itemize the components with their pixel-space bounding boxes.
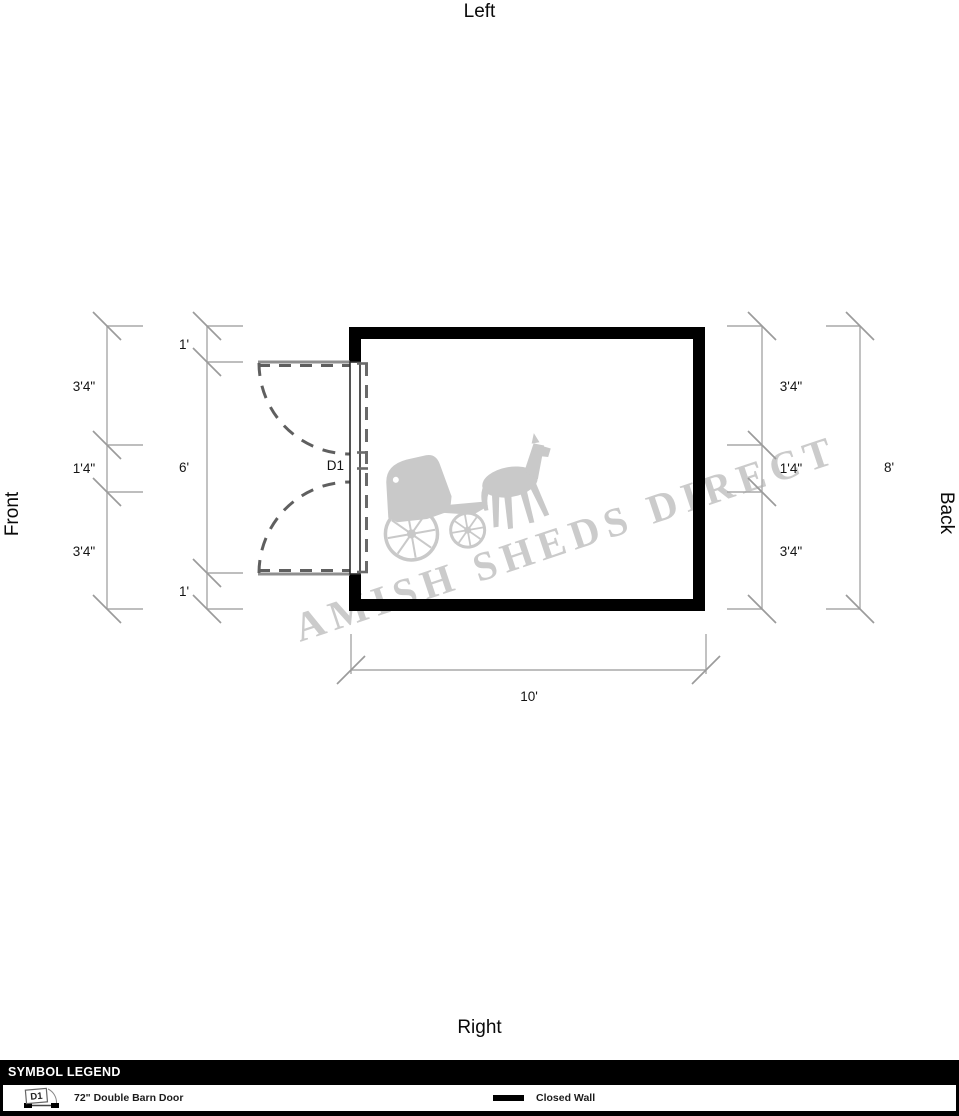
door-swing-arc-top xyxy=(259,363,350,454)
door-symbol-label: D1 xyxy=(30,1090,44,1102)
wall-top xyxy=(349,327,705,339)
dim-label: 1'4" xyxy=(73,461,96,476)
watermark-text: AMISH SHEDS DIRECT xyxy=(288,426,844,651)
dim-label: 3'4" xyxy=(73,544,96,559)
wall-left-lower xyxy=(349,574,361,611)
dim-label-height: 8' xyxy=(884,460,894,475)
legend-body: D1 72" Double Barn Door Closed Wall xyxy=(3,1085,956,1111)
floor-plan-page: Left Front Back Right xyxy=(0,0,959,1116)
wall-bottom xyxy=(349,599,705,611)
legend-wall-label: Closed Wall xyxy=(536,1092,595,1104)
dim-label: 3'4" xyxy=(780,379,803,394)
legend-item-door: D1 72" Double Barn Door xyxy=(23,1085,183,1111)
dimension-bottom: 10' xyxy=(337,634,720,704)
dim-label: 1' xyxy=(179,337,189,352)
closed-wall-icon xyxy=(493,1095,524,1101)
dim-label: 1' xyxy=(179,584,189,599)
dim-label-width: 10' xyxy=(520,689,538,704)
legend-header: SYMBOL LEGEND xyxy=(0,1060,959,1085)
dim-label: 3'4" xyxy=(780,544,803,559)
legend-door-label: 72" Double Barn Door xyxy=(74,1092,183,1104)
dim-label: 6' xyxy=(179,460,189,475)
door-swing-arc-bottom xyxy=(259,482,350,573)
door-d1: D1 xyxy=(258,362,368,574)
dimension-left-inner: 1' 6' 1' xyxy=(179,312,243,623)
dim-label: 3'4" xyxy=(73,379,96,394)
wall-right xyxy=(693,327,705,611)
dimension-left-outer: 3'4" 1'4" 3'4" xyxy=(73,312,143,623)
floor-plan-drawing: AMISH SHEDS DIRECT 3'4" 1'4" 3'4" xyxy=(0,0,959,1060)
wall-left-upper xyxy=(349,327,361,362)
door-symbol-icon: D1 xyxy=(23,1087,61,1110)
dim-label: 1'4" xyxy=(780,461,803,476)
legend-item-closed-wall: Closed Wall xyxy=(493,1085,595,1111)
watermark: AMISH SHEDS DIRECT xyxy=(288,426,844,651)
symbol-legend: SYMBOL LEGEND D1 72" Double Barn Door Cl xyxy=(0,1060,959,1116)
door-label: D1 xyxy=(327,458,344,473)
